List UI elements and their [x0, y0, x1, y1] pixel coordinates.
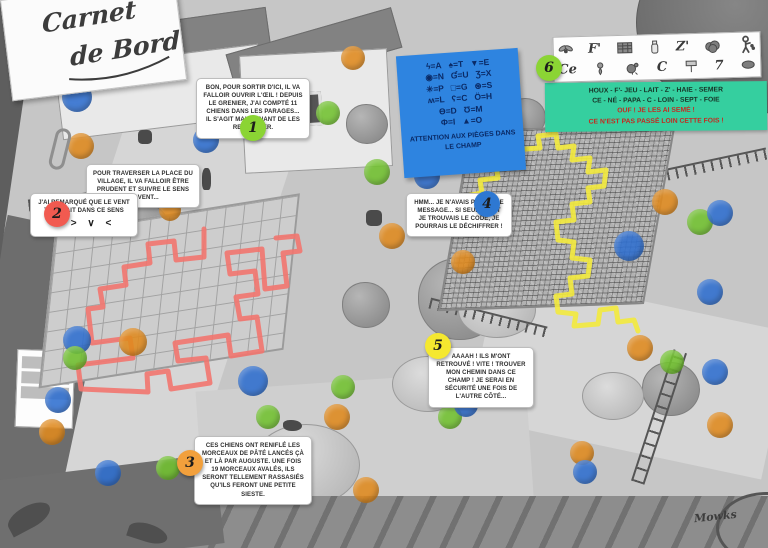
bubble-dogs-text: CES CHIENS ONT RENIFLÉ LES MORCEAUX DE P…	[202, 443, 304, 498]
orange-token[interactable]	[341, 46, 365, 70]
orange-token[interactable]	[451, 250, 475, 274]
villager-figure	[202, 168, 211, 190]
tree	[346, 104, 388, 144]
cipher-warning-text: ATTENTION AUX PIÈGES DANS LE CHAMP	[405, 128, 520, 155]
game-grid-icon	[615, 40, 633, 56]
orange-token[interactable]	[119, 328, 147, 356]
tree	[342, 282, 390, 328]
rebus-answer-band: HOUX - F'- JEU - LAIT - Z' - HAIE - SEME…	[545, 81, 767, 132]
wheelchair-figure	[138, 130, 152, 144]
game-board: 123456 BON, POUR SORTIR D'ICI, IL VA FAL…	[0, 0, 768, 548]
green-token[interactable]	[63, 346, 87, 370]
blue-token[interactable]	[238, 366, 268, 396]
blue-token[interactable]	[702, 359, 728, 385]
rebus-text-sept: 7	[714, 58, 723, 73]
blue-token[interactable]	[45, 387, 71, 413]
orange-token[interactable]	[379, 223, 405, 249]
blue-token[interactable]	[614, 231, 644, 261]
cipher-pair: ▲=O	[462, 115, 483, 128]
blue-token[interactable]	[697, 279, 723, 305]
sower-icon	[735, 34, 756, 55]
rebus-text-f: F'	[588, 41, 602, 56]
wheelchair-figure	[366, 210, 382, 226]
green-token[interactable]	[316, 101, 340, 125]
green-token[interactable]	[660, 350, 684, 374]
bubble-field-panic-text: AAAAH ! ILS M'ONT RETROUVÉ ! VITE ! TROU…	[436, 354, 525, 400]
dog-figure	[283, 420, 302, 431]
rebus-result-line2: CE N'EST PAS PASSÉ LOIN CETTE FOIS !	[548, 116, 764, 128]
blue-token[interactable]	[95, 460, 121, 486]
signpost-icon	[684, 58, 698, 74]
orange-token[interactable]	[627, 335, 653, 361]
holly-icon	[558, 41, 574, 57]
step-badge-1[interactable]: 1	[240, 115, 266, 141]
orange-token[interactable]	[68, 133, 94, 159]
milk-bottle-icon	[647, 39, 661, 55]
step-badge-6[interactable]: 6	[536, 55, 562, 81]
green-token[interactable]	[331, 375, 355, 399]
step-badge-3[interactable]: 3	[177, 450, 203, 476]
orange-token[interactable]	[652, 189, 678, 215]
hedge-icon	[703, 37, 721, 53]
step-badge-5[interactable]: 5	[425, 333, 451, 359]
haystack	[582, 372, 644, 420]
cipher-panel: ϟ=A♠=T▼=E◉=NƓ=UƷ=X✳=P□=G⊛=Sʍ=Lʕ=CÖ=HƟ=DƱ…	[396, 48, 526, 178]
green-token[interactable]	[364, 159, 390, 185]
cipher-pair: Φ=I	[441, 117, 456, 129]
green-token[interactable]	[256, 405, 280, 429]
turkey-icon	[624, 59, 640, 75]
blue-token[interactable]	[707, 200, 733, 226]
orange-token[interactable]	[324, 404, 350, 430]
fence	[666, 148, 768, 181]
blue-token[interactable]	[573, 460, 597, 484]
rebus-text-z: Z'	[676, 39, 690, 54]
orange-token[interactable]	[353, 477, 379, 503]
rebus-text-c: C	[657, 59, 668, 74]
orange-token[interactable]	[39, 419, 65, 445]
bubble-dogs: CES CHIENS ONT RENIFLÉ LES MORCEAUX DE P…	[194, 436, 312, 505]
step-badge-4[interactable]: 4	[474, 191, 500, 217]
baby-icon	[593, 60, 607, 76]
rebus-panel: F' Z' Ce C 7 HOUX - F'- JEU - LAIT - Z' …	[545, 34, 767, 131]
liver-icon	[740, 57, 756, 71]
rebus-strip: F' Z' Ce C 7	[552, 31, 761, 82]
cipher-pair: Ö=H	[474, 91, 492, 104]
orange-token[interactable]	[707, 412, 733, 438]
cipher-key: ϟ=A♠=T▼=E◉=NƓ=UƷ=X✳=P□=G⊛=Sʍ=Lʕ=CÖ=HƟ=DƱ…	[400, 55, 519, 132]
step-badge-2[interactable]: 2	[44, 201, 70, 227]
